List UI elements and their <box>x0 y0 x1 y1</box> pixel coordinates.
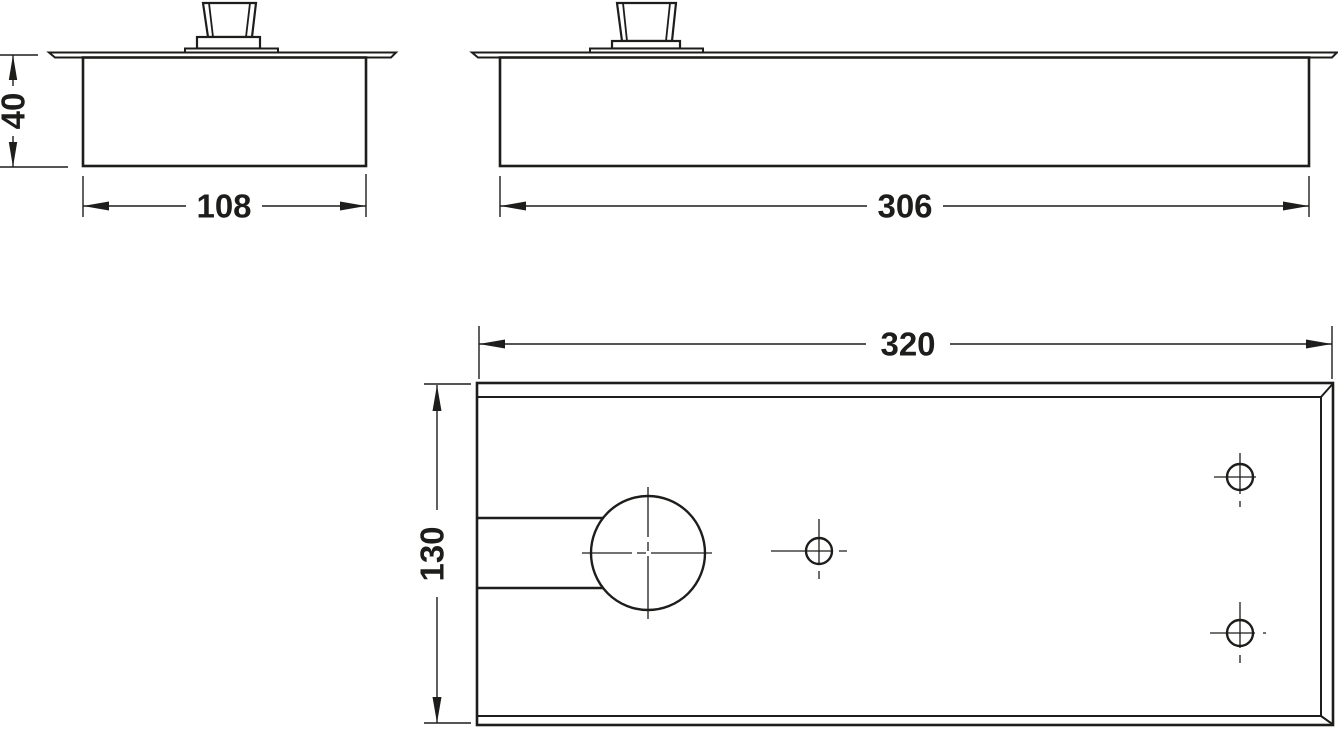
dim-130: 130 <box>414 384 472 723</box>
dim-label-130: 130 <box>414 526 451 581</box>
arrowhead-right <box>340 202 366 211</box>
closer-body-outline <box>500 58 1309 167</box>
front-view: 306 <box>472 3 1337 225</box>
dim-label-306: 306 <box>877 188 932 225</box>
spindle-plinth <box>612 41 680 49</box>
dim-label-40: 40 <box>0 93 32 130</box>
closer-body-outline <box>83 58 366 167</box>
arrowhead-left <box>479 340 505 349</box>
arrowhead-up <box>9 55 17 80</box>
dim-40: 40 <box>0 55 68 167</box>
arrowhead-right <box>1306 340 1332 349</box>
arrowhead-down <box>9 142 17 167</box>
plan-view: 320 130 <box>414 326 1334 726</box>
dim-label-320: 320 <box>880 326 935 363</box>
spindle-plinth <box>197 37 260 49</box>
technical-drawing-canvas: 40 108 <box>0 0 1338 730</box>
arrowhead-left <box>83 202 109 211</box>
arrowhead-up <box>433 385 442 411</box>
dim-108: 108 <box>83 174 366 225</box>
arrowhead-right <box>1283 202 1309 211</box>
dim-320: 320 <box>479 326 1332 380</box>
technical-drawing-page: 40 108 <box>0 0 1338 730</box>
arrowhead-left <box>500 202 526 211</box>
dim-label-108: 108 <box>196 188 251 225</box>
arrowhead-down <box>433 697 442 723</box>
end-view: 40 108 <box>0 3 396 225</box>
dim-306: 306 <box>500 176 1309 225</box>
